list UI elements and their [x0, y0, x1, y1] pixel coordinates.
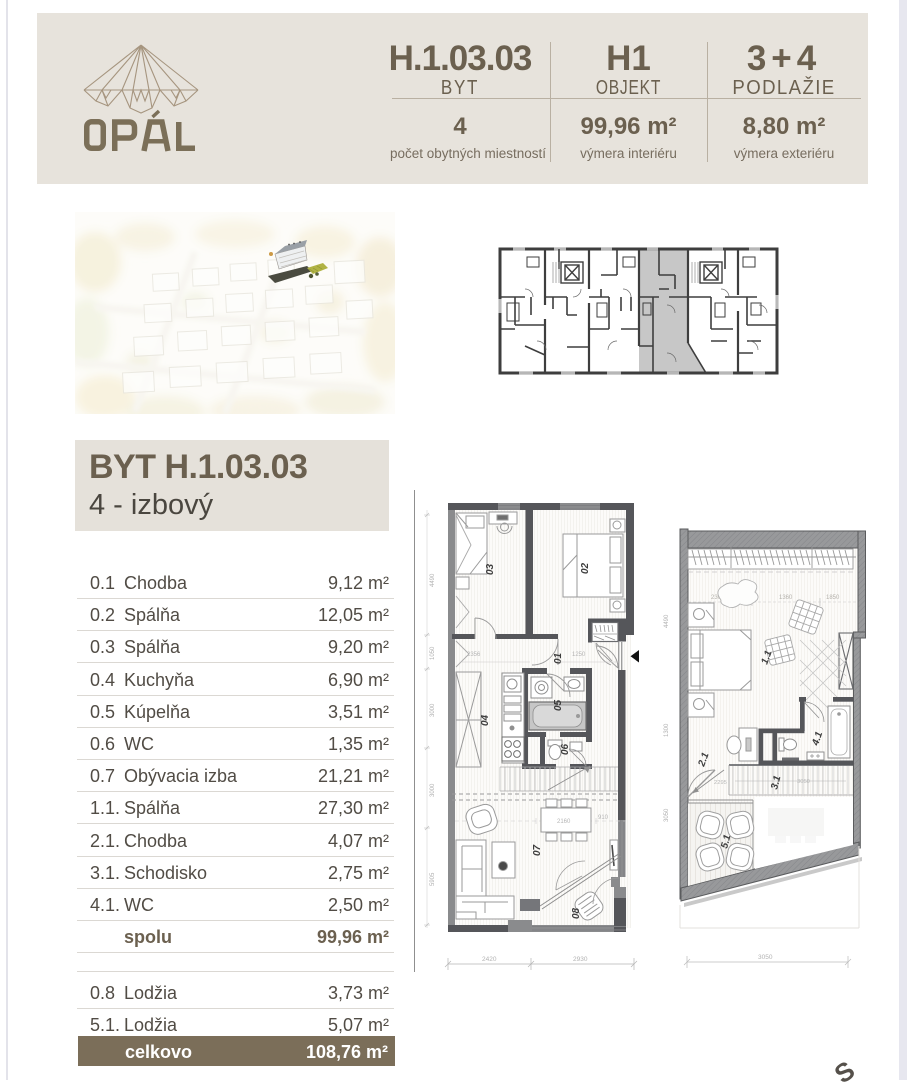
svg-text:3050: 3050: [797, 779, 810, 785]
svg-text:3000: 3000: [430, 783, 436, 797]
svg-text:06: 06: [560, 743, 571, 755]
svg-text:1300: 1300: [664, 723, 670, 737]
svg-text:2295: 2295: [714, 780, 727, 786]
svg-text:4490: 4490: [430, 573, 436, 587]
svg-text:2160: 2160: [557, 819, 571, 825]
svg-text:2420: 2420: [482, 956, 497, 963]
svg-text:2930: 2930: [573, 956, 588, 963]
svg-text:05: 05: [553, 699, 564, 711]
svg-text:1250: 1250: [572, 652, 586, 658]
svg-text:4490: 4490: [664, 614, 670, 628]
svg-text:910: 910: [598, 815, 609, 821]
svg-text:04: 04: [480, 714, 491, 726]
svg-text:5905: 5905: [430, 872, 436, 886]
svg-text:02: 02: [580, 562, 591, 574]
svg-text:03: 03: [485, 563, 496, 575]
svg-text:3000: 3000: [430, 703, 436, 717]
svg-text:1050: 1050: [430, 646, 436, 660]
svg-text:3050: 3050: [758, 954, 773, 961]
svg-text:08: 08: [571, 907, 582, 919]
svg-text:1360: 1360: [779, 595, 793, 601]
svg-text:3050: 3050: [664, 808, 670, 822]
svg-text:07: 07: [532, 844, 543, 856]
svg-text:2356: 2356: [467, 652, 481, 658]
svg-text:1850: 1850: [826, 595, 840, 601]
